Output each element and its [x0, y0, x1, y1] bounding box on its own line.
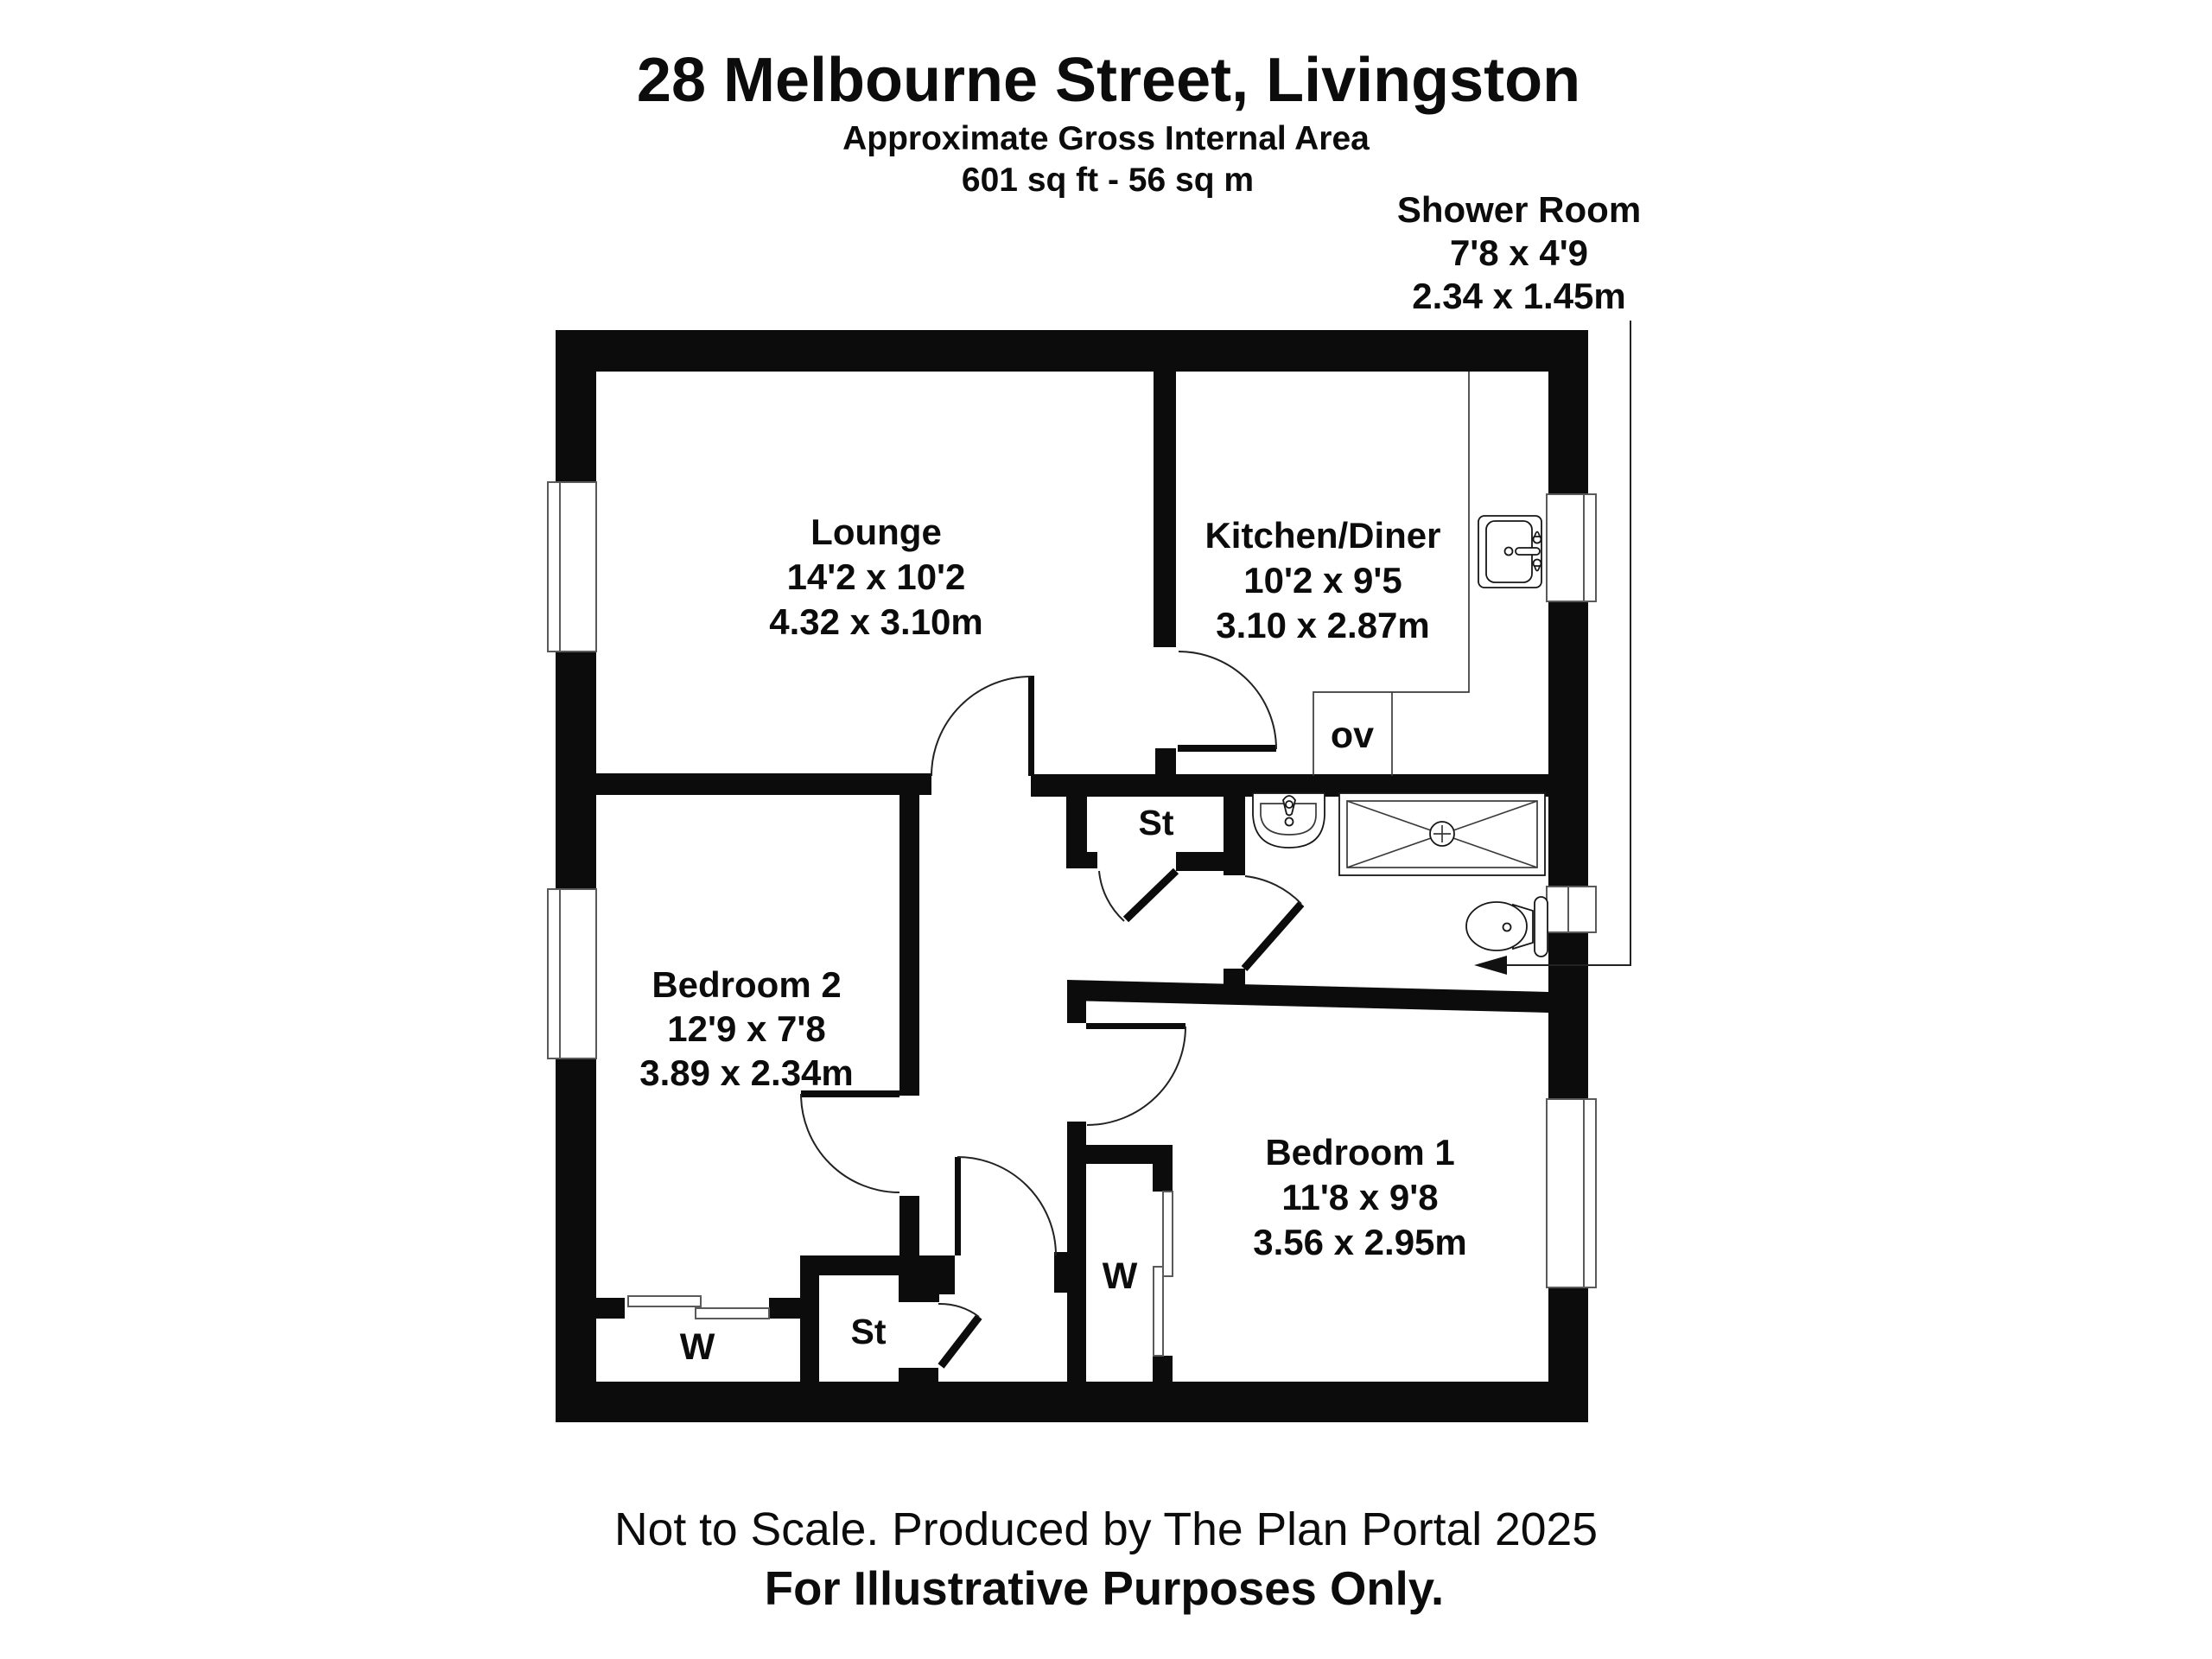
- svg-text:3.10 x 2.87m: 3.10 x 2.87m: [1216, 605, 1430, 645]
- svg-text:601 sq ft - 56 sq m: 601 sq ft - 56 sq m: [962, 162, 1254, 199]
- svg-text:Kitchen/Diner: Kitchen/Diner: [1205, 515, 1440, 556]
- svg-text:St: St: [851, 1312, 887, 1351]
- svg-text:Bedroom 2: Bedroom 2: [652, 964, 841, 1005]
- svg-text:3.56 x 2.95m: 3.56 x 2.95m: [1253, 1222, 1467, 1262]
- svg-text:Approximate Gross Internal Are: Approximate Gross Internal Area: [842, 120, 1370, 157]
- svg-text:Bedroom 1: Bedroom 1: [1265, 1132, 1454, 1173]
- svg-text:14'2 x 10'2: 14'2 x 10'2: [787, 556, 966, 597]
- svg-text:St: St: [1139, 803, 1174, 842]
- svg-text:W: W: [1103, 1255, 1138, 1297]
- svg-text:W: W: [680, 1326, 715, 1368]
- svg-text:11'8 x 9'8: 11'8 x 9'8: [1281, 1177, 1438, 1217]
- svg-text:7'8 x 4'9: 7'8 x 4'9: [1450, 232, 1588, 273]
- svg-text:12'9 x 7'8: 12'9 x 7'8: [667, 1008, 825, 1049]
- svg-text:2.34 x 1.45m: 2.34 x 1.45m: [1412, 276, 1626, 316]
- svg-text:For Illustrative Purposes Only: For Illustrative Purposes Only.: [765, 1562, 1444, 1615]
- svg-text:Lounge: Lounge: [810, 512, 942, 552]
- svg-text:Not to Scale. Produced by The: Not to Scale. Produced by The Plan Porta…: [614, 1504, 1598, 1555]
- svg-text:10'2 x 9'5: 10'2 x 9'5: [1243, 560, 1402, 601]
- svg-text:28 Melbourne Street, Livingsto: 28 Melbourne Street, Livingston: [637, 46, 1580, 115]
- svg-text:3.89 x 2.34m: 3.89 x 2.34m: [639, 1052, 854, 1093]
- svg-text:ov: ov: [1331, 715, 1374, 756]
- svg-text:4.32 x 3.10m: 4.32 x 3.10m: [769, 601, 983, 642]
- svg-text:Shower Room: Shower Room: [1397, 189, 1641, 230]
